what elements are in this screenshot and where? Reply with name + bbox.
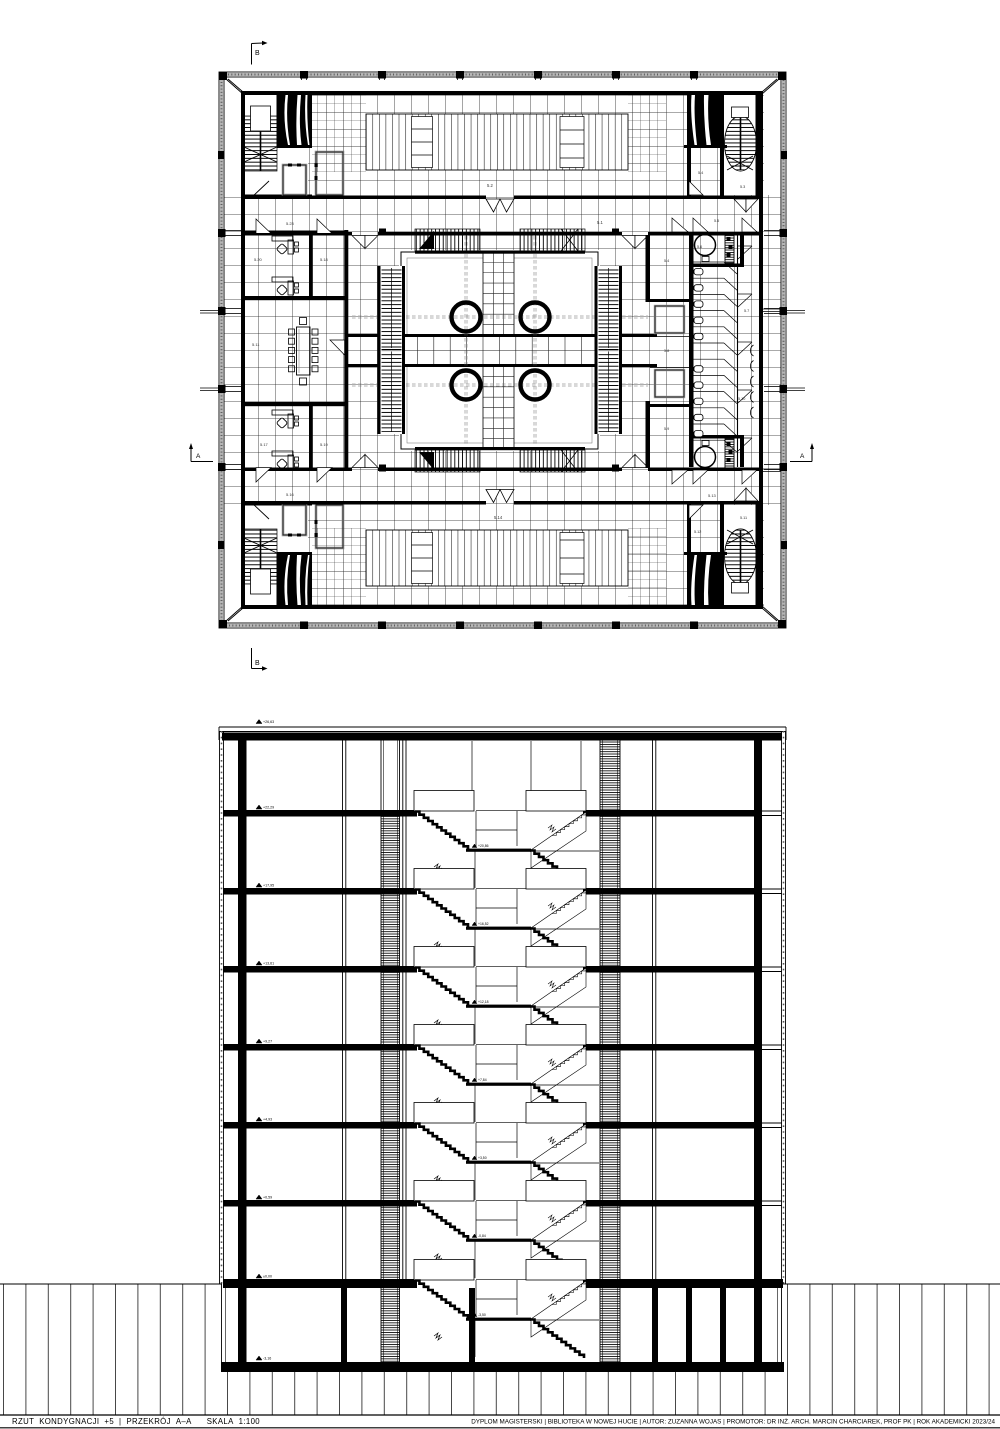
- svg-text:RZUT KONDYGNACJI +5 | PRZE: RZUT KONDYGNACJI +5 | PRZEKRÓJ A–A SKALA…: [12, 1417, 260, 1426]
- svg-text:5.17: 5.17: [260, 442, 269, 447]
- svg-text:+12,18: +12,18: [478, 1000, 489, 1004]
- svg-text:-0,84: -0,84: [478, 1234, 486, 1238]
- svg-text:+3,50: +3,50: [478, 1156, 487, 1160]
- svg-text:5.20: 5.20: [254, 257, 263, 262]
- svg-text:-3,16: -3,16: [263, 1357, 271, 1361]
- svg-text:B: B: [255, 660, 260, 667]
- svg-text:5.3: 5.3: [740, 185, 745, 189]
- svg-text:5.6: 5.6: [697, 245, 702, 249]
- svg-text:5.5: 5.5: [714, 219, 719, 223]
- svg-text:+20,86: +20,86: [478, 844, 489, 848]
- svg-text:5.13: 5.13: [708, 493, 717, 498]
- svg-text:+4,93: +4,93: [263, 1118, 272, 1122]
- svg-text:5.7: 5.7: [744, 309, 749, 313]
- svg-text:±0,00: ±0,00: [263, 1275, 272, 1279]
- svg-text:+22,29: +22,29: [263, 806, 274, 810]
- svg-text:5.11: 5.11: [252, 342, 260, 347]
- svg-text:+16,52: +16,52: [478, 922, 489, 926]
- svg-text:B: B: [255, 50, 260, 57]
- svg-text:5.11: 5.11: [740, 516, 747, 520]
- svg-text:5.12: 5.12: [694, 530, 701, 534]
- svg-text:5.1: 5.1: [597, 220, 603, 225]
- svg-text:5.2: 5.2: [487, 183, 493, 188]
- svg-text:-3,50: -3,50: [478, 1313, 486, 1317]
- svg-text:+9,27: +9,27: [263, 1040, 272, 1044]
- svg-text:5.4: 5.4: [698, 171, 703, 175]
- svg-text:5.19: 5.19: [320, 442, 329, 447]
- svg-text:+7,84: +7,84: [478, 1078, 487, 1082]
- svg-text:5.4: 5.4: [664, 259, 669, 263]
- svg-text:+26,63: +26,63: [263, 720, 274, 724]
- svg-text:+13,61: +13,61: [263, 962, 274, 966]
- svg-text:DYPLOM MAGISTERSKI | BIBLIOTEK: DYPLOM MAGISTERSKI | BIBLIOTEKA W NOWEJ …: [471, 1417, 995, 1426]
- svg-text:5.8: 5.8: [664, 349, 669, 353]
- svg-text:5.23: 5.23: [286, 221, 295, 226]
- svg-text:+17,95: +17,95: [263, 884, 274, 888]
- svg-text:A: A: [196, 453, 201, 460]
- svg-text:A: A: [800, 453, 805, 460]
- svg-text:+0,59: +0,59: [263, 1196, 272, 1200]
- svg-text:5.9: 5.9: [664, 427, 669, 431]
- svg-text:5.14: 5.14: [494, 515, 503, 520]
- svg-text:5.18: 5.18: [320, 257, 329, 262]
- svg-text:5.16: 5.16: [286, 492, 295, 497]
